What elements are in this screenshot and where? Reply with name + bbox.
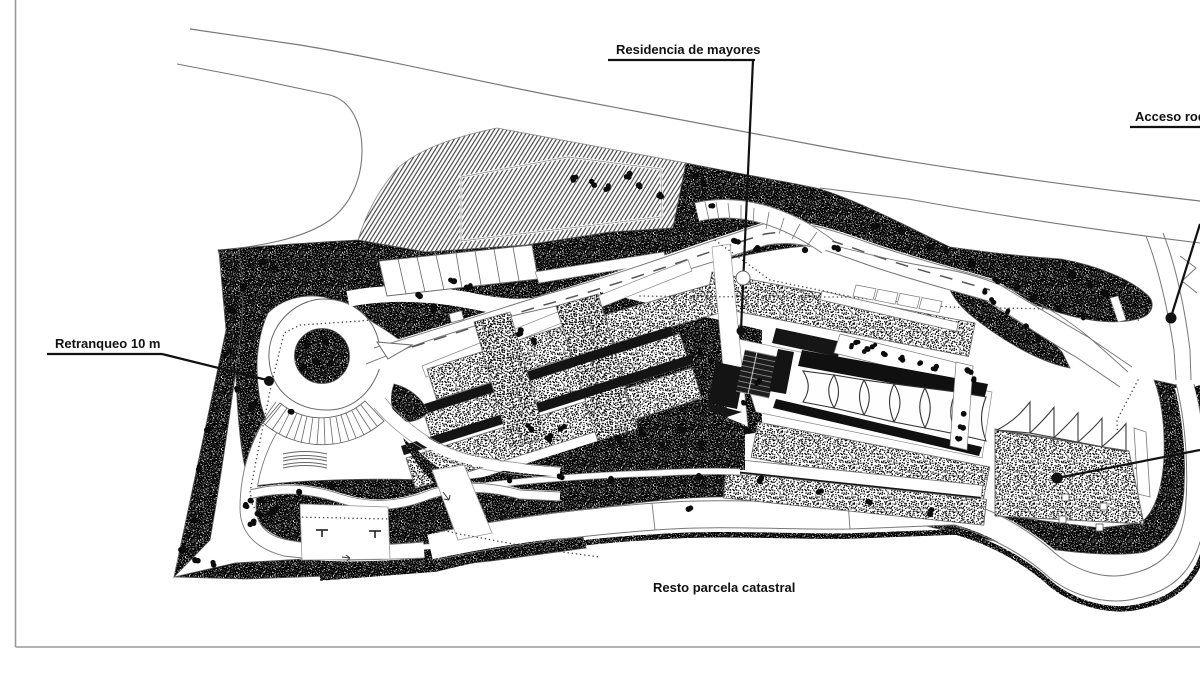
svg-text:Retranqueo 10 m: Retranqueo 10 m — [55, 336, 160, 351]
svg-text:Resto parcela catastral: Resto parcela catastral — [653, 580, 795, 595]
svg-text:Residencia de mayores: Residencia de mayores — [616, 42, 761, 57]
svg-text:Acceso rod: Acceso rod — [1135, 109, 1200, 124]
